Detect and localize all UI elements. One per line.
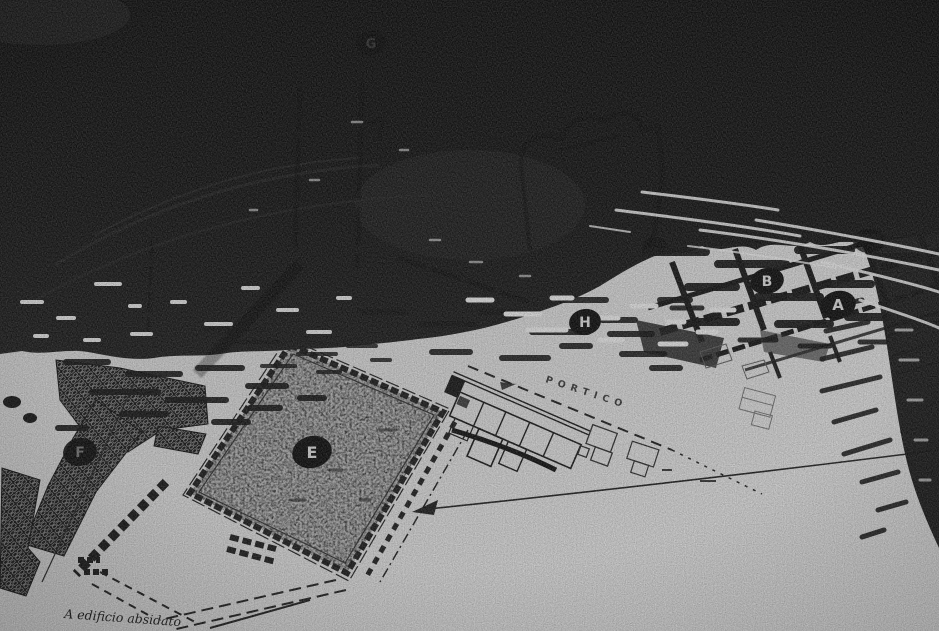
site-plan-photo: PORTICO A edificio absidato <box>0 0 939 631</box>
film-grain <box>0 0 939 631</box>
vignette <box>0 0 939 631</box>
photo-canvas: PORTICO A edificio absidato <box>0 0 939 631</box>
